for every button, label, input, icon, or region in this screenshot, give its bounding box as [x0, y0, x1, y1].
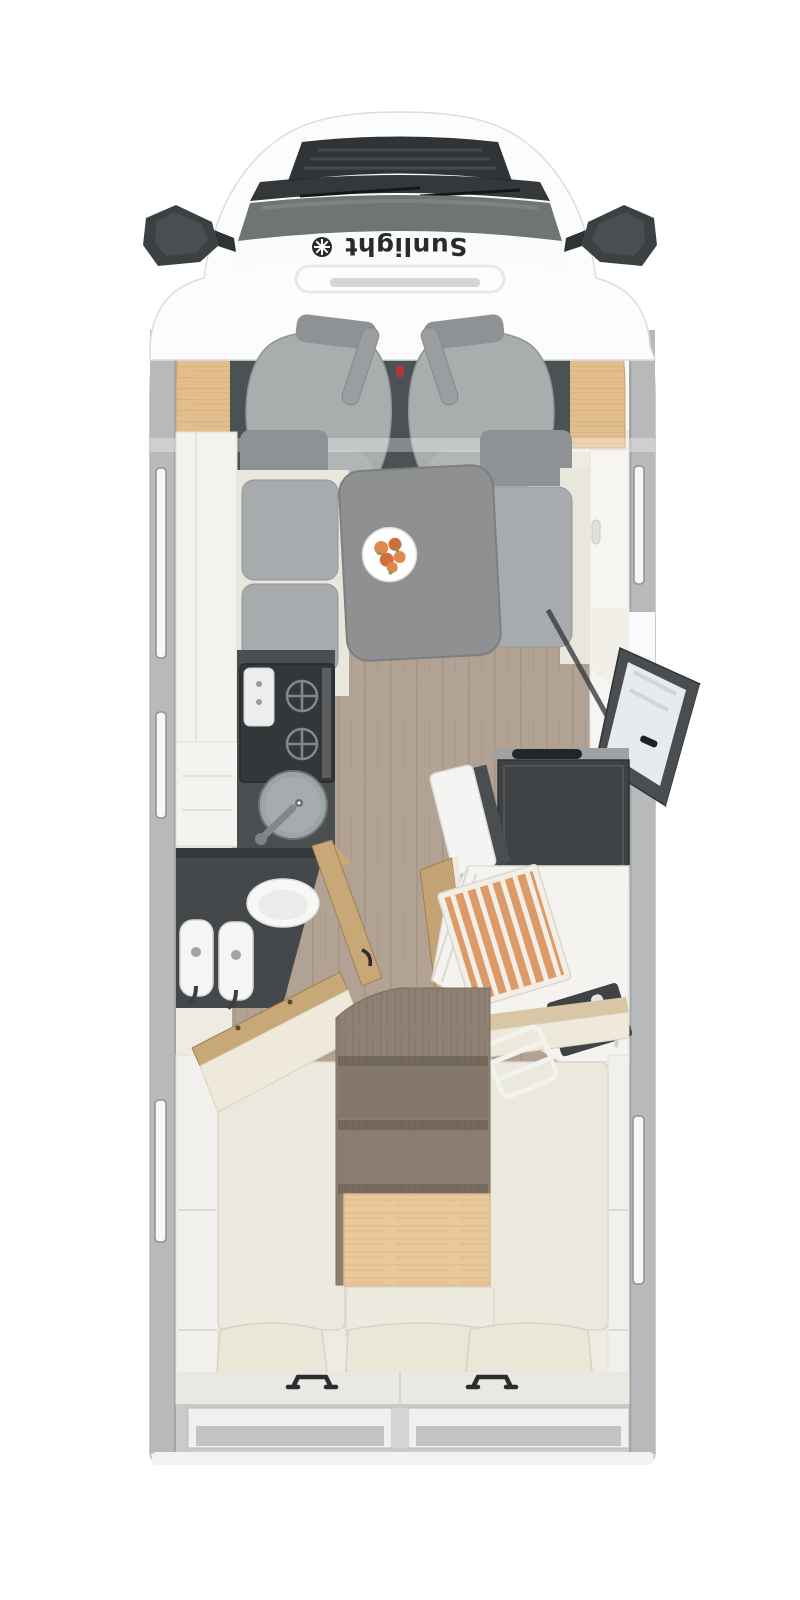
hood-bar: [330, 278, 480, 287]
floorplan-image: Sunlight: [0, 0, 800, 1600]
toilet: [247, 879, 319, 927]
burner-2: [287, 729, 317, 759]
pillows: [217, 1323, 592, 1379]
sideboard-handle: [592, 520, 600, 544]
wardrobe-left: [176, 1055, 218, 1404]
burner-1: [287, 681, 317, 711]
pillow-left: [217, 1323, 327, 1379]
stove-lid: [244, 668, 274, 726]
fridge-handle: [512, 749, 582, 759]
rear-platform: [176, 1372, 629, 1405]
kitchen-cabinet: [176, 742, 238, 846]
vanity-edge: [176, 848, 325, 858]
rear-bedroom: [176, 972, 629, 1452]
shelf-divider: [392, 1408, 408, 1448]
rear-bumper: [152, 1452, 653, 1465]
window-left-2: [156, 712, 166, 818]
wardrobe-right: [608, 1055, 629, 1404]
brand-logo-text: Sunlight: [345, 232, 467, 261]
rear-steps: [336, 988, 490, 1286]
cab: Sunlight: [143, 112, 657, 360]
headrest-right-bench: [480, 430, 572, 486]
stove: [240, 664, 334, 782]
dinette-table: [338, 464, 502, 662]
window-left-3: [155, 1100, 166, 1242]
window-right-1: [634, 466, 644, 584]
step-platform: [344, 1194, 490, 1286]
window-right-2: [633, 1116, 644, 1284]
pillow-right: [466, 1323, 592, 1379]
window-left-1: [156, 468, 166, 658]
motorhome-floorplan-svg: Sunlight: [0, 0, 800, 1600]
hob-hinge: [322, 668, 331, 778]
rear-garage-shelves: [176, 1404, 629, 1452]
seatbelt-buckle: [396, 366, 404, 377]
sun-logo-icon: [312, 237, 332, 257]
